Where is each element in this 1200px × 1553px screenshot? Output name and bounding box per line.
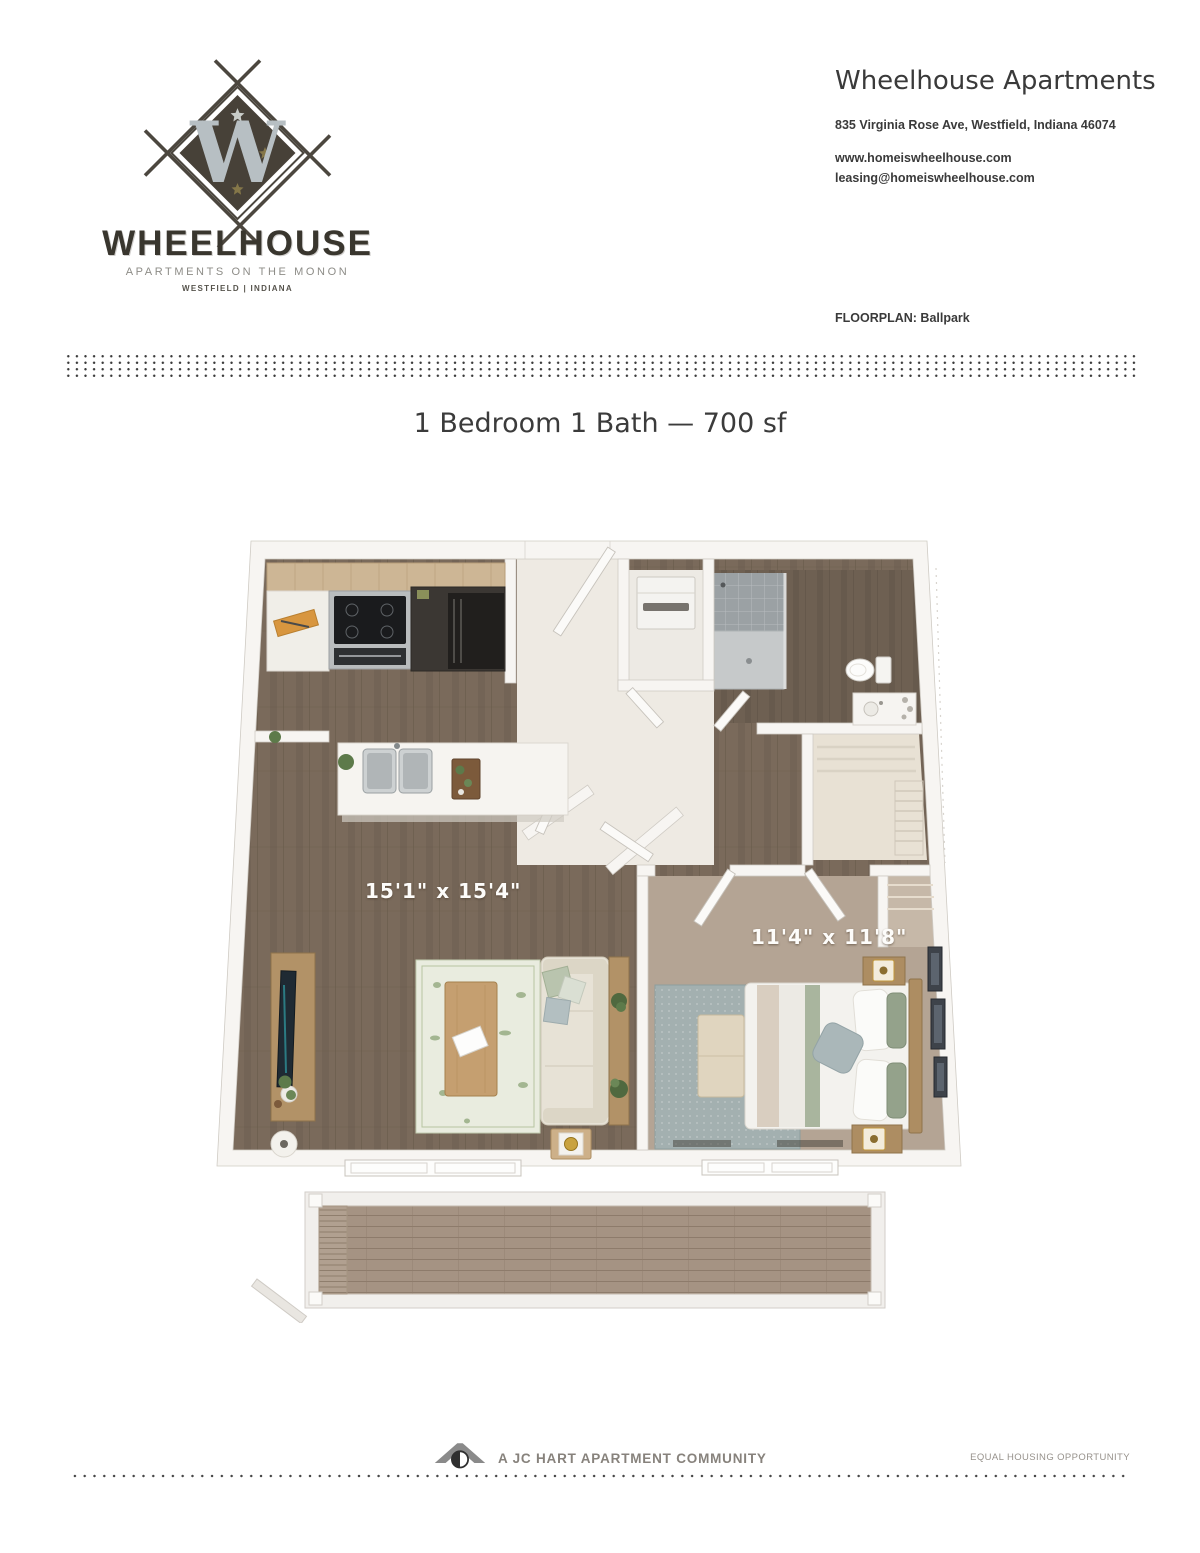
floorplan-line: FLOORPLAN: Ballpark (835, 311, 970, 325)
plant-icon (338, 754, 354, 770)
sofa-table (609, 957, 629, 1125)
footer-dotted-rule (70, 1472, 1130, 1480)
serving-tray (452, 759, 480, 799)
floorplan-name: Ballpark (920, 311, 969, 325)
deck-stairs (319, 1206, 347, 1294)
logo-location: WESTFIELD | INDIANA (60, 284, 415, 293)
laundry (637, 577, 695, 629)
jchart-house-icon (432, 1436, 488, 1472)
sink (864, 702, 878, 716)
shower-head-icon (721, 583, 726, 588)
lamp-icon (880, 967, 888, 975)
living-window (345, 1160, 521, 1176)
floorplan-label: FLOORPLAN: (835, 311, 917, 325)
deck-planks (319, 1206, 871, 1294)
community-credit: A JC HART APARTMENT COMMUNITY (498, 1451, 767, 1466)
property-address: 835 Virginia Rose Ave, Westfield, Indian… (835, 118, 1116, 132)
bedroom-dimensions: 11'4" x 11'8" (751, 925, 907, 949)
website-link[interactable]: www.homeiswheelhouse.com (835, 151, 1012, 165)
living-bedroom-wall (637, 876, 648, 1150)
refrigerator (448, 593, 504, 669)
deck (252, 1192, 885, 1323)
equal-housing-label: EQUAL HOUSING OPPORTUNITY (955, 1452, 1130, 1463)
faucet-icon (394, 743, 400, 749)
email-link[interactable]: leasing@homeiswheelhouse.com (835, 171, 1035, 185)
logo-monogram: W (189, 103, 286, 202)
property-title: Wheelhouse Apartments (835, 66, 1156, 96)
shower (714, 573, 785, 689)
flyer-page: W WHEELHOUSE APARTMENTS ON THE MONON WES… (0, 0, 1200, 1553)
plan-title: 1 Bedroom 1 Bath — 700 sf (0, 408, 1200, 439)
logo-tagline: APARTMENTS ON THE MONON (60, 266, 415, 278)
decor-bowl (565, 1138, 578, 1151)
headboard (909, 979, 922, 1133)
logo-wordmark: WHEELHOUSE (60, 224, 415, 264)
dotted-separator (64, 353, 1136, 379)
plant-icon (269, 731, 281, 743)
bedroom-window (702, 1160, 838, 1175)
living-room-dimensions: 15'1" x 15'4" (365, 879, 521, 903)
lamp-icon (870, 1135, 878, 1143)
floorplan-figure: 15'1" x 15'4" 11'4" x 11'8" (205, 533, 980, 1323)
wheelhouse-logo-icon: W (140, 58, 335, 250)
deck-rail (252, 1279, 307, 1323)
